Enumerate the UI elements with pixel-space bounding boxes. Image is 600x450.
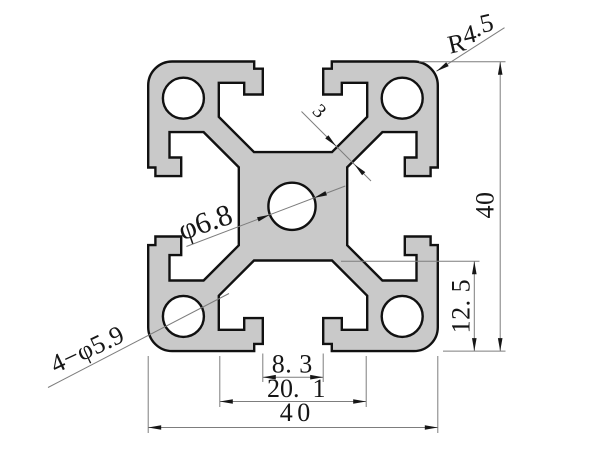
svg-text:12. 5: 12. 5 [447,279,476,334]
svg-text:40: 40 [280,398,315,427]
svg-text:40: 40 [471,192,500,219]
